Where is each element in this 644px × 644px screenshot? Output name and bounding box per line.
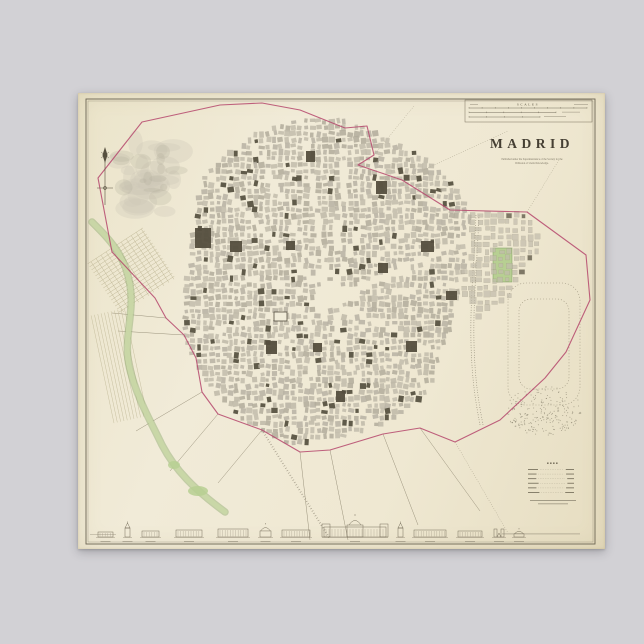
map-title: MADRID <box>490 136 574 151</box>
hill-shading <box>106 130 193 218</box>
railway-hatch-line <box>262 430 330 539</box>
map-svg: SCALES MADRID Published under the Superi… <box>78 93 605 549</box>
woodland-stipple <box>507 386 581 435</box>
imprint-line-1: Published under the Superintendence of t… <box>501 158 563 161</box>
building-elevations-strip <box>96 514 526 542</box>
engraver-imprint-greek <box>90 534 116 535</box>
legend-table <box>528 463 576 505</box>
scales-box: SCALES <box>465 100 592 122</box>
riverside-park <box>168 461 180 469</box>
plaza-mayor <box>274 312 287 321</box>
publisher-imprint-greek <box>502 534 580 535</box>
map-art <box>88 103 590 542</box>
riverside-park <box>188 486 208 496</box>
title-imprint: Published under the Superintendence of t… <box>501 158 563 165</box>
scales-label: SCALES <box>517 103 539 107</box>
madrid-map-poster: SCALES MADRID Published under the Superi… <box>78 93 605 549</box>
product-backdrop: SCALES MADRID Published under the Superi… <box>0 0 644 644</box>
city-blocks <box>182 118 540 446</box>
imprint-line-2: Diffusion of Useful Knowledge. <box>515 162 549 165</box>
